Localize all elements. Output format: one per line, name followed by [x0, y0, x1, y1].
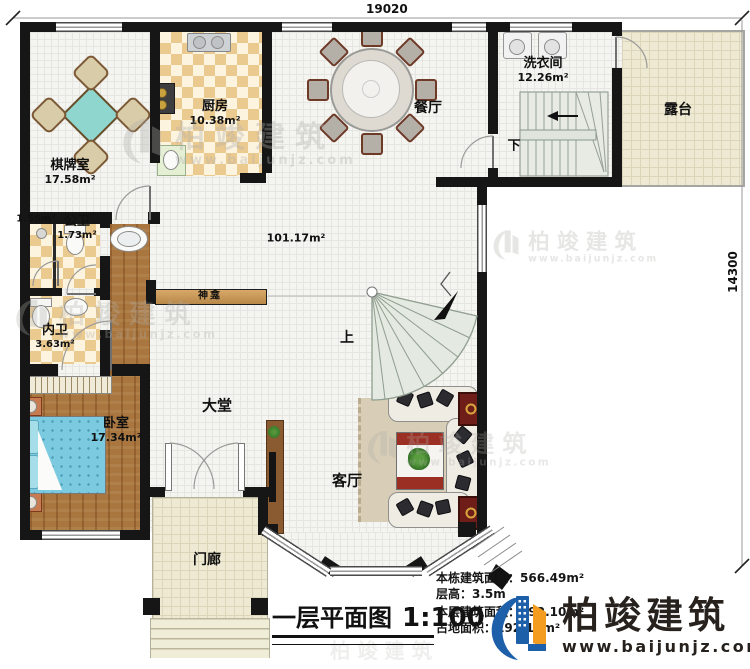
baijun-building-logo-icon: [484, 590, 556, 662]
dining-chair: [361, 133, 383, 155]
room-label-bedroom: 卧室 17.34m²: [90, 417, 141, 445]
kitchen-cabinet-basin: [163, 150, 179, 170]
washer-drum: [544, 39, 560, 55]
info-value: 566.49m²: [520, 571, 584, 585]
room-label-porch: 门廊: [193, 552, 221, 568]
washer-drum: [509, 39, 525, 55]
brand-website: www.baijunjz.com: [562, 637, 750, 656]
room-name: 内卫: [35, 324, 74, 339]
wall: [243, 487, 270, 497]
stairs-up-label: 上: [340, 330, 354, 346]
dimension-width: 19020: [366, 2, 408, 16]
room-name: 棋牌室: [44, 159, 95, 174]
tv: [269, 452, 276, 502]
watermark: 柏竣建筑 www.baijunjz.com: [490, 224, 658, 264]
wall: [100, 256, 110, 300]
room-label-public-bath: 公卫 1.73m²: [57, 215, 96, 241]
room-label-shower: 1.56m²: [16, 213, 55, 225]
plant-small: [268, 426, 280, 438]
plan-title: 一层平面图: [272, 598, 392, 633]
room-name: 厨房: [189, 100, 240, 115]
wall: [477, 187, 487, 205]
brand-name: 柏竣建筑: [562, 597, 750, 634]
window: [510, 22, 572, 32]
window: [282, 22, 332, 32]
wall: [100, 212, 110, 228]
porch-pillar: [143, 598, 160, 615]
wall: [488, 32, 498, 134]
room-label-laundry: 洗衣间 12.26m²: [517, 57, 568, 85]
wall: [20, 288, 62, 296]
room-label-dining: 餐厅: [414, 100, 442, 116]
inner-bath-sink: [64, 298, 88, 316]
floor-plan: 棋牌室 17.58m² 厨房 10.38m² 餐厅 洗衣间 12.26m² 露台…: [0, 0, 750, 669]
kitchen-sink-basin: [211, 36, 224, 49]
room-area: 3.63m²: [35, 339, 74, 351]
window: [330, 566, 422, 576]
room-name: 洗衣间: [517, 57, 568, 72]
open-area-label: 101.17m²: [267, 233, 326, 246]
dimension-height: 14300: [726, 251, 740, 293]
sofa-pillow: [435, 499, 452, 516]
watermark-name: 柏竣建筑: [528, 224, 658, 256]
hallway-basin-inner: [117, 231, 141, 247]
wall: [612, 32, 622, 36]
room-label-chess: 棋牌室 17.58m²: [44, 159, 95, 187]
shrine-label: 神龛: [198, 290, 222, 302]
watermark-site: www.baijunjz.com: [528, 254, 658, 265]
title-underline: [272, 635, 434, 645]
room-area: 12.26m²: [517, 72, 568, 85]
room-label-lobby: 大堂: [202, 397, 232, 414]
wall: [120, 530, 150, 540]
dining-table-center: [362, 80, 380, 98]
room-area: 10.38m²: [189, 115, 240, 128]
porch-pillar: [251, 598, 268, 615]
wardrobe: [22, 376, 112, 394]
kitchen-sink-basin: [193, 36, 206, 49]
info-label: 本栋建筑面积：: [436, 571, 520, 585]
dining-chair: [415, 79, 437, 101]
wall: [262, 32, 272, 173]
wall: [140, 487, 165, 497]
porch-steps: [150, 618, 270, 658]
room-name: 卧室: [90, 417, 141, 432]
brand-block: 柏竣建筑 www.baijunjz.com: [484, 590, 750, 662]
wall: [477, 272, 487, 534]
window: [42, 530, 120, 540]
room-area: 17.58m²: [44, 174, 95, 187]
wall: [148, 212, 160, 224]
wall: [612, 68, 622, 177]
wall: [150, 32, 160, 163]
coffee-table-plant: [408, 448, 430, 470]
room-label-inner-bath: 内卫 3.63m²: [35, 324, 74, 350]
room-label-kitchen: 厨房 10.38m²: [189, 100, 240, 128]
entry-door-leaf: [238, 443, 245, 491]
wall: [100, 330, 110, 376]
entry-door-leaf: [165, 443, 172, 491]
room-label-living: 客厅: [332, 472, 362, 489]
room-area: 17.34m²: [90, 432, 141, 445]
info-label: 层高：: [436, 587, 472, 601]
wall: [140, 364, 150, 540]
wall: [240, 173, 266, 183]
wall: [20, 364, 58, 376]
room-label-terrace: 露台: [664, 102, 692, 118]
dining-chair: [307, 79, 329, 101]
wall: [146, 280, 156, 304]
wall: [20, 530, 42, 540]
shower-head: [36, 228, 47, 239]
room-name: 公卫: [57, 215, 96, 230]
wall: [436, 177, 622, 187]
window: [56, 22, 122, 32]
wall-partition: [53, 224, 56, 288]
stairs-down-label: 下: [507, 140, 520, 155]
window: [452, 22, 486, 32]
window: [477, 205, 487, 272]
wall: [20, 22, 30, 540]
room-area: 1.73m²: [57, 230, 96, 242]
